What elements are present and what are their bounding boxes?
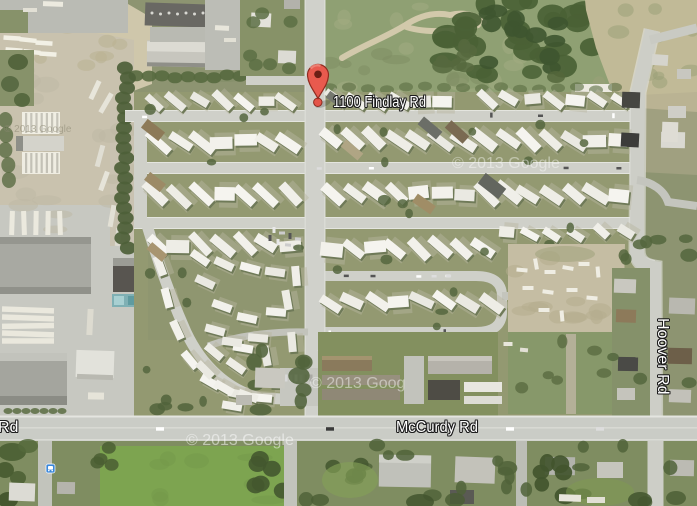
svg-text:Rd: Rd — [0, 419, 18, 436]
svg-text:1100 Findlay Rd: 1100 Findlay Rd — [333, 94, 426, 111]
svg-text:Hoover Rd: Hoover Rd — [654, 318, 671, 394]
svg-text:McCurdy Rd: McCurdy Rd — [396, 419, 478, 436]
svg-text:© 2013 Goog: © 2013 Goog — [310, 375, 405, 392]
svg-text:© 2013 Google: © 2013 Google — [186, 432, 294, 449]
svg-text:© 2013 Google: © 2013 Google — [452, 155, 560, 172]
svg-text:© 2013 Google: © 2013 Google — [4, 124, 72, 135]
